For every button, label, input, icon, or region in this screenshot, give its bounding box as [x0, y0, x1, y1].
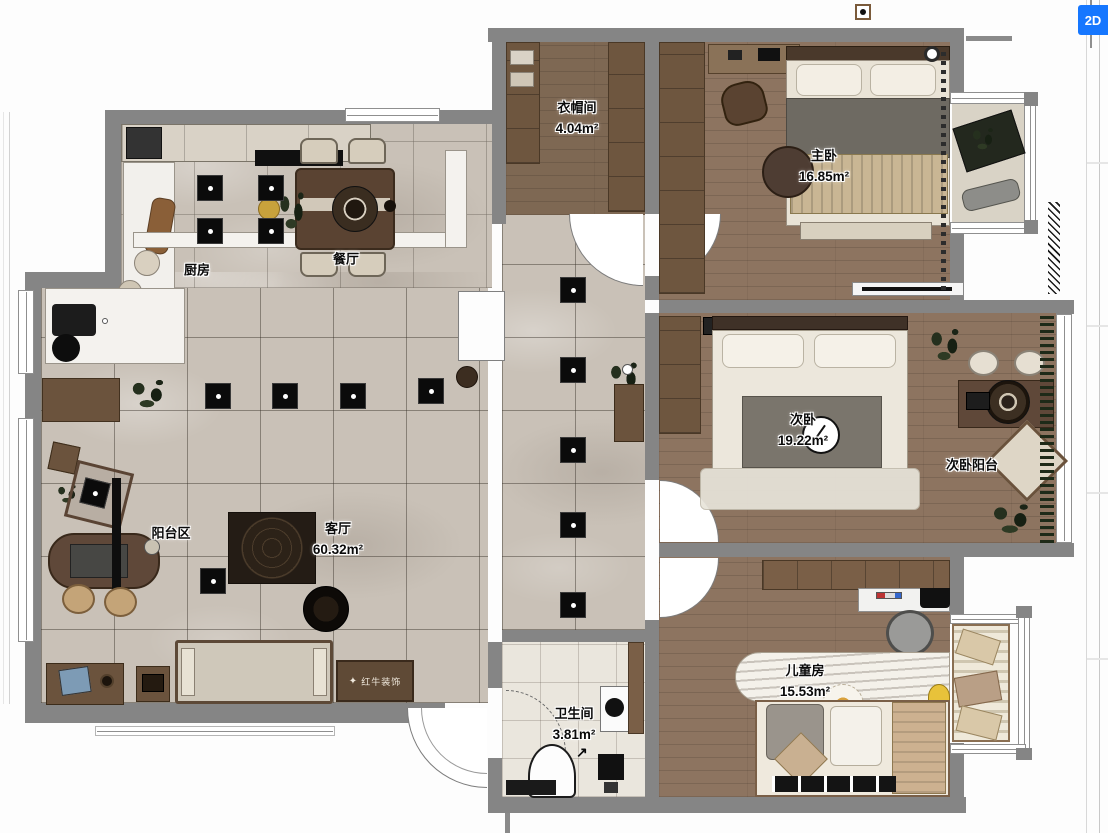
room-name: 主卧 — [811, 148, 837, 163]
pillow-white — [830, 706, 882, 766]
wall-entry-right-low — [488, 758, 502, 810]
wall-top-master — [488, 28, 964, 42]
spotlight — [258, 218, 284, 244]
laptop[interactable] — [966, 392, 990, 410]
spotlight-icon-core — [860, 9, 866, 15]
wall-hall-second — [645, 313, 659, 480]
curtain-line — [941, 50, 946, 290]
ruler-left-line — [3, 112, 4, 704]
insulation-hatch — [1048, 202, 1060, 294]
spotlight — [205, 383, 231, 409]
room-area: 60.32m² — [313, 542, 363, 557]
ruler-right-line2 — [1099, 0, 1100, 833]
decor-bowl — [986, 380, 1030, 424]
window-corner-stub — [1016, 606, 1032, 618]
room-name: 次卧 — [790, 412, 816, 427]
shoe-cabinet[interactable] — [458, 291, 505, 361]
side-table-knob — [100, 674, 114, 688]
table-knob — [384, 200, 396, 212]
room-name: 阳台区 — [151, 526, 190, 541]
office-chair[interactable] — [886, 610, 934, 656]
wall-hall-kids — [645, 620, 659, 797]
window-left-lower — [18, 418, 34, 642]
wall-stub-top-right — [966, 36, 1012, 41]
spotlight — [560, 277, 586, 303]
second-bed-headboard — [712, 316, 908, 330]
spotlight — [197, 218, 223, 244]
wall-kitchen-left — [105, 124, 121, 272]
room-label-dining[interactable]: 餐厅 — [333, 249, 359, 270]
room-name: 衣帽间 — [557, 100, 596, 115]
shower-head — [604, 782, 618, 793]
dining-chair[interactable] — [348, 138, 386, 164]
room-label-cloakroom[interactable]: 衣帽间 4.04m² — [556, 97, 599, 139]
balcony2-plant-bottom[interactable] — [982, 496, 1040, 542]
tv[interactable] — [862, 287, 952, 291]
dining-chair[interactable] — [300, 138, 338, 164]
desk-items — [758, 48, 780, 61]
ceiling-fan — [924, 46, 940, 62]
side-table-inset — [142, 674, 164, 692]
room-label-living[interactable]: 客厅 60.32m² — [313, 518, 363, 560]
serving-platter[interactable] — [332, 186, 378, 232]
wall-entry-right-up — [488, 642, 502, 688]
wall-master-second — [659, 300, 1062, 313]
window-corner-stub — [1016, 748, 1032, 760]
hedge-strip — [1040, 316, 1054, 543]
round-ottoman[interactable] — [303, 586, 349, 632]
sink — [605, 698, 624, 717]
pot[interactable] — [52, 334, 80, 362]
window-kids-bay-bottom — [950, 744, 1026, 754]
pillow — [722, 334, 804, 368]
sideboard[interactable] — [42, 378, 120, 422]
master-wardrobe[interactable] — [659, 42, 705, 294]
wall-right-kids-up — [950, 557, 964, 617]
watermark-logo: ✦红牛装饰 — [338, 662, 412, 700]
room-area: 16.85m² — [799, 169, 849, 184]
wall-balcony2-cap-top — [1056, 300, 1074, 314]
spotlight — [560, 437, 586, 463]
bed-bench[interactable] — [800, 222, 932, 240]
cloakroom-wardrobe-right[interactable] — [608, 42, 645, 212]
kids-wardrobe-top[interactable] — [762, 560, 950, 590]
wall-cloak-left — [492, 28, 506, 224]
hall-console[interactable] — [614, 384, 644, 442]
spotlight — [340, 383, 366, 409]
room-name: 厨房 — [184, 263, 210, 278]
room-name: 客厅 — [325, 521, 351, 536]
room-label-master[interactable]: 主卧 16.85m² — [799, 145, 849, 187]
ox-icon: ✦ — [349, 676, 358, 687]
sofa[interactable] — [175, 640, 333, 704]
room-name: 儿童房 — [785, 663, 824, 678]
room-area: 15.53m² — [780, 684, 830, 699]
kitchen-counter-right[interactable] — [445, 150, 467, 248]
spotlight-icon — [855, 4, 871, 20]
ruler-left-line2 — [9, 112, 10, 704]
bath-mat — [506, 780, 556, 795]
window-second-balcony — [1056, 314, 1072, 543]
desk-items — [728, 50, 742, 60]
shower-column[interactable] — [598, 754, 624, 780]
wall-bottom-left — [25, 703, 445, 723]
balcony2-stool[interactable] — [968, 350, 999, 376]
sofa-armrest — [181, 648, 195, 696]
room-name: 卫生间 — [554, 706, 593, 721]
living-plant[interactable] — [122, 372, 174, 416]
ruler-right-line — [1086, 0, 1087, 833]
room-area: 4.04m² — [556, 121, 599, 136]
wall-bottom-right — [488, 797, 966, 813]
spotlight — [197, 175, 223, 201]
spotlight — [418, 378, 444, 404]
ruler-tick — [1087, 492, 1108, 494]
wall-kitchen-top — [105, 110, 502, 124]
hall-stool[interactable] — [456, 366, 478, 388]
pillow — [870, 64, 936, 96]
coffee-table[interactable] — [228, 512, 316, 584]
balcony2-plant-top[interactable] — [922, 320, 968, 370]
storage-box — [510, 50, 534, 65]
window-left-upper — [18, 290, 34, 374]
pencil-box — [876, 592, 902, 599]
window-kitchen-top — [345, 108, 440, 122]
wall-hall-master-up — [645, 28, 659, 214]
wall-left-horiz — [25, 272, 121, 288]
cooktop[interactable] — [52, 304, 96, 336]
blanket-tan — [892, 702, 946, 794]
room-area: 3.81m² — [553, 727, 596, 742]
spotlight — [200, 568, 226, 594]
bed-base — [772, 776, 896, 792]
balcony-stool[interactable] — [62, 584, 95, 614]
watermark-table[interactable]: ✦红牛装饰 — [336, 660, 414, 702]
sink-dot — [102, 318, 108, 324]
room-label-kids[interactable]: 儿童房 15.53m² — [780, 660, 830, 702]
notebook[interactable] — [58, 666, 91, 696]
ruler-tick — [1087, 162, 1108, 164]
wall-bath-top — [502, 630, 645, 642]
room-label-second[interactable]: 次卧 19.22m² — [778, 409, 828, 451]
window-corner-stub — [1024, 220, 1038, 234]
spotlight — [272, 383, 298, 409]
spotlight — [560, 512, 586, 538]
ruler-tick — [1087, 658, 1108, 660]
kitchen-stool[interactable] — [134, 250, 160, 276]
hall-vase — [622, 364, 633, 375]
window-kids-bay-right — [1018, 614, 1030, 754]
desk-lamp-black[interactable] — [920, 588, 950, 608]
spotlight — [560, 357, 586, 383]
bath-cabinet[interactable] — [628, 642, 644, 734]
label-arrow: ↗ — [576, 744, 590, 758]
room-name: 次卧阳台 — [946, 458, 998, 473]
spotlight — [560, 592, 586, 618]
room-label-second-balcony[interactable]: 次卧阳台 — [946, 455, 998, 476]
second-wardrobe[interactable] — [659, 316, 701, 434]
room-label-balcony-zone[interactable]: 阳台区 — [151, 523, 190, 544]
balcony-plant[interactable] — [966, 122, 1000, 156]
pillow — [814, 334, 896, 368]
room-area: 19.22m² — [778, 433, 828, 448]
storage-box — [510, 72, 534, 87]
pillow — [796, 64, 862, 96]
window-master-balcony-right — [1024, 92, 1036, 234]
wall-balcony2-cap-bot — [1056, 543, 1074, 557]
wall-hall-master-low — [645, 276, 659, 300]
balcony-stool[interactable] — [104, 587, 137, 617]
room-label-kitchen[interactable]: 厨房 — [184, 260, 210, 281]
second-rug — [700, 468, 920, 510]
window-sill-outside — [95, 726, 335, 736]
wall-second-kids — [659, 543, 1062, 557]
window-kids-bay-top — [950, 614, 1026, 624]
floorplan-canvas: ✦红牛装饰 — [0, 0, 1108, 833]
spotlight — [258, 175, 284, 201]
window-corner-stub — [1024, 92, 1038, 106]
wall-stub-bottom — [505, 813, 510, 833]
ruler-tick — [1087, 325, 1108, 327]
room-name: 餐厅 — [333, 252, 359, 267]
room-label-bathroom[interactable]: 卫生间 3.81m² — [553, 703, 596, 745]
view-2d-button[interactable]: 2D — [1078, 5, 1108, 35]
sofa-armrest — [313, 648, 327, 696]
kitchen-range[interactable] — [126, 127, 162, 159]
